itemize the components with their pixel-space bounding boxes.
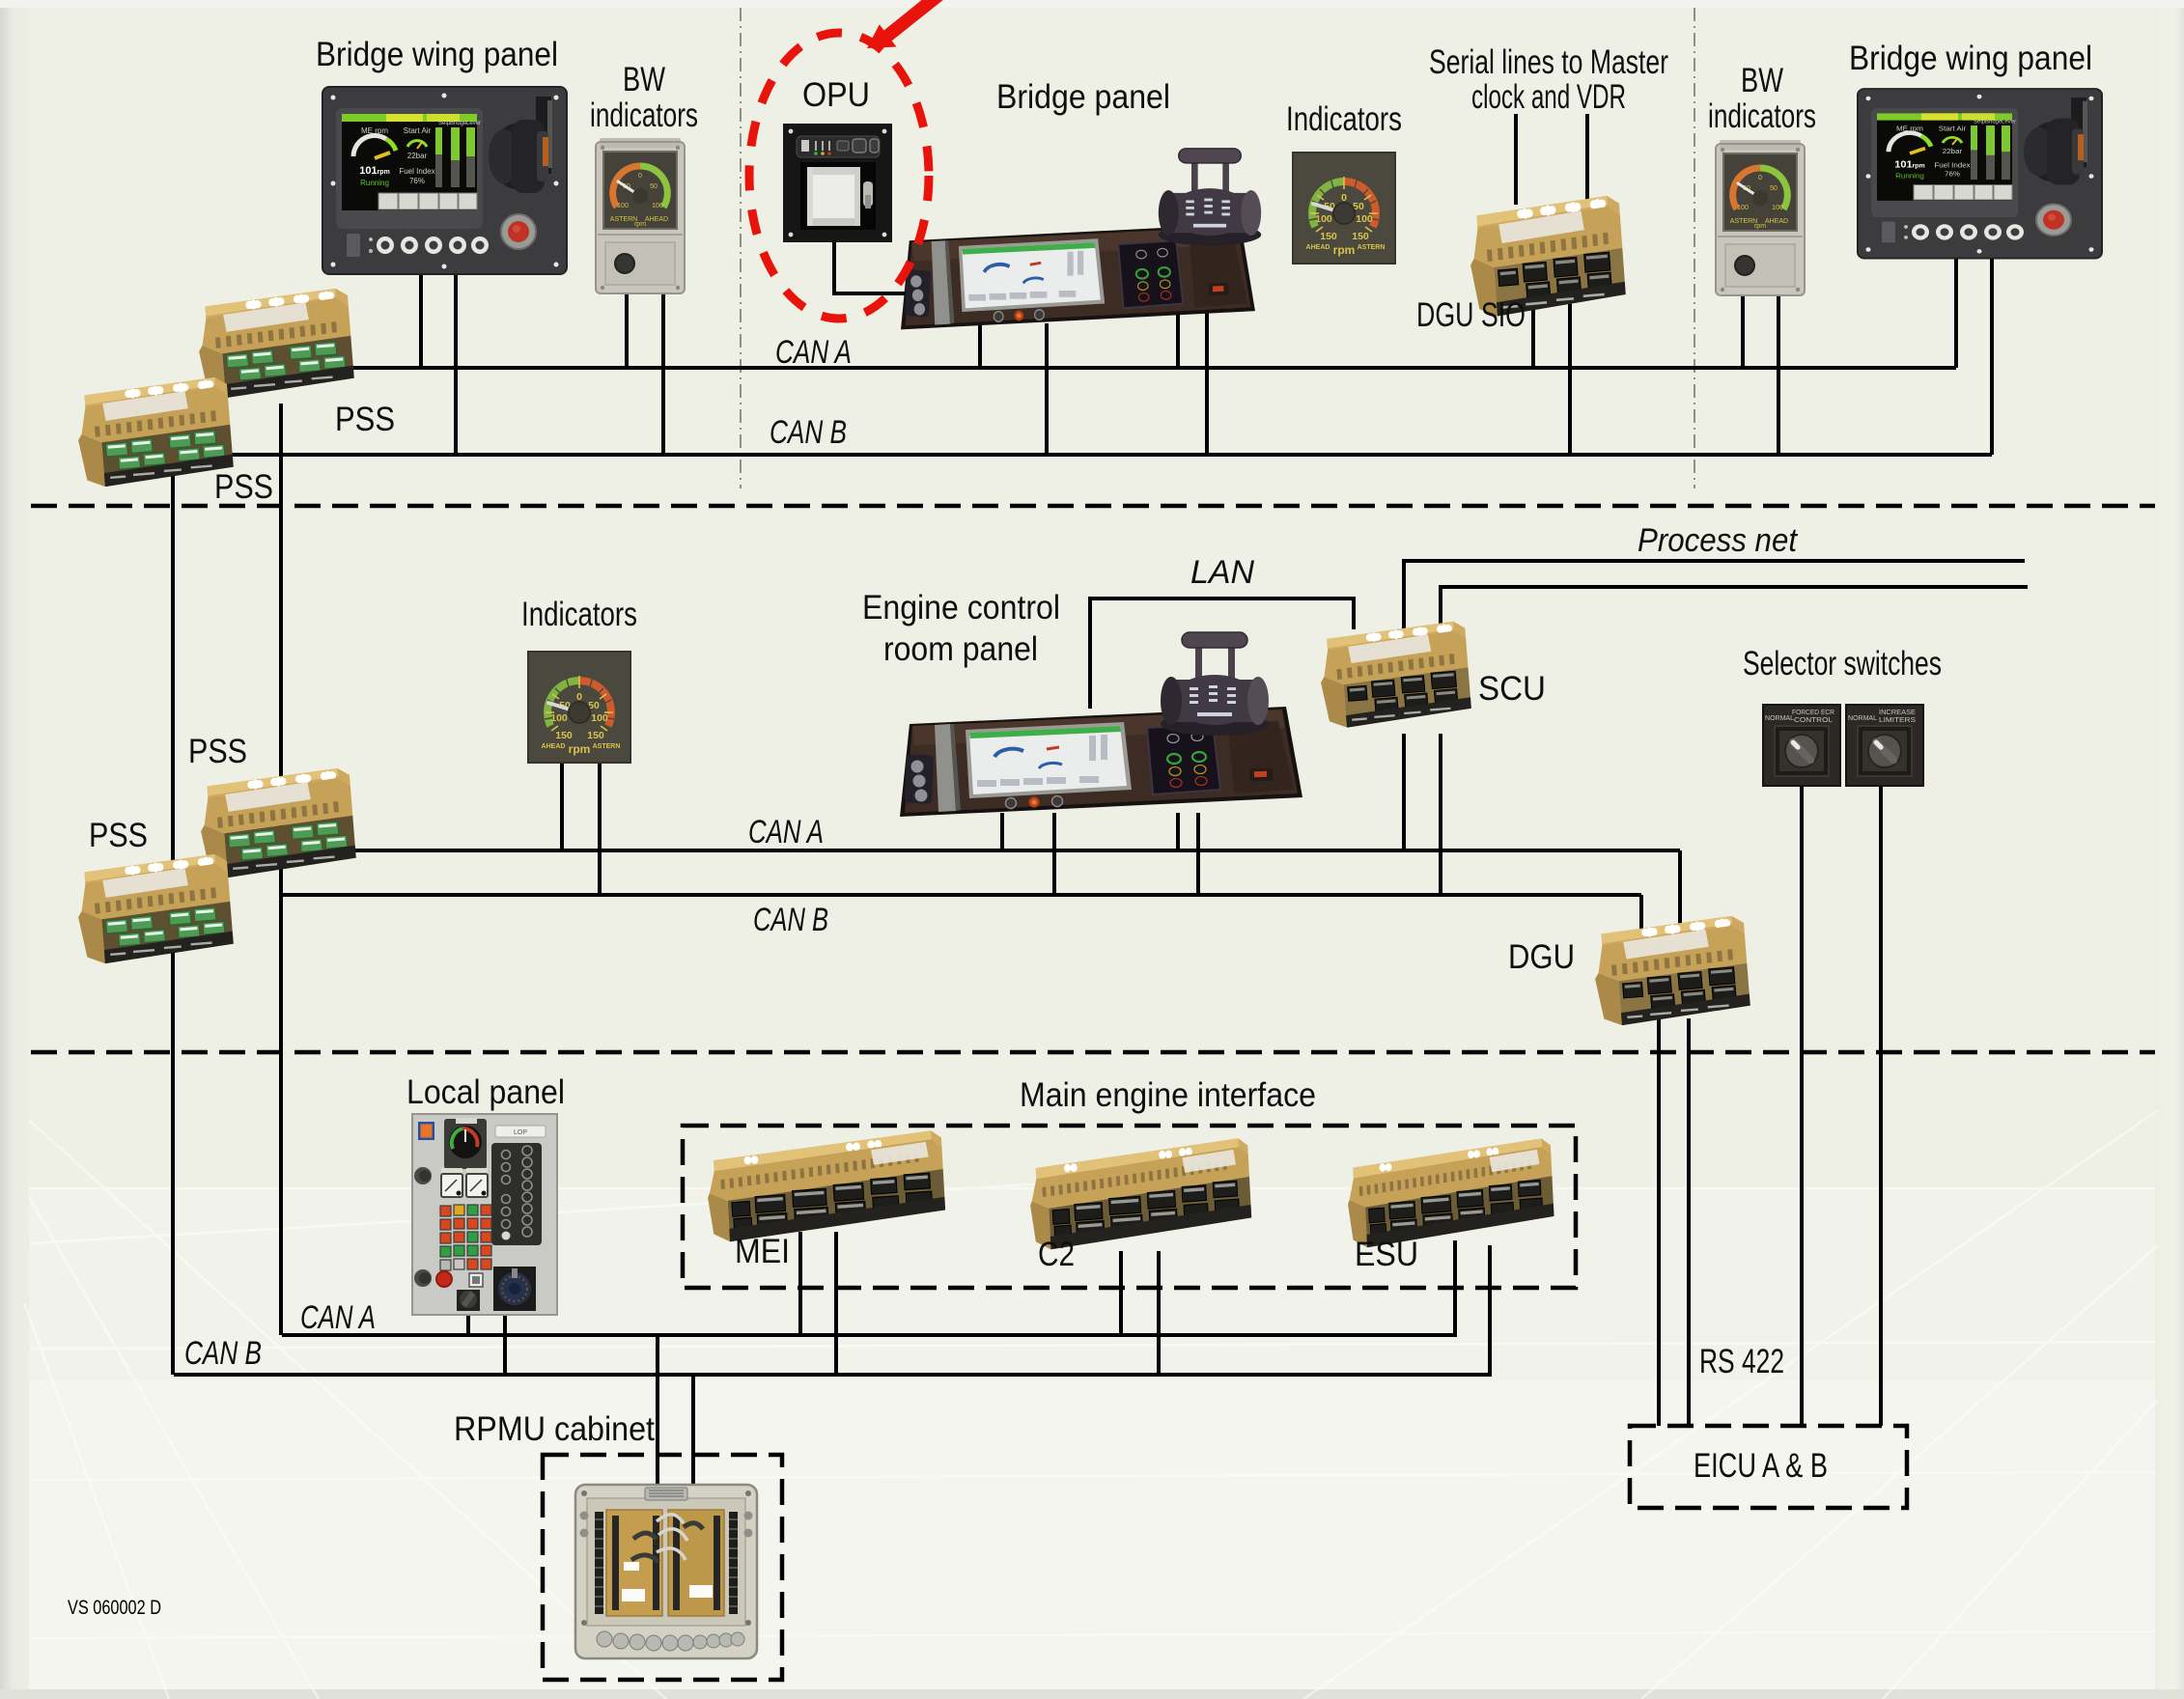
svg-text:PSS: PSS (188, 733, 247, 770)
svg-text:CAN A: CAN A (300, 1299, 376, 1336)
svg-text:room panel: room panel (883, 630, 1038, 668)
svg-text:Indicators: Indicators (1286, 100, 1402, 138)
svg-text:CAN A: CAN A (748, 814, 824, 850)
svg-text:Local panel: Local panel (406, 1073, 565, 1111)
svg-text:clock and VDR: clock and VDR (1471, 78, 1626, 116)
svg-text:CAN B: CAN B (184, 1335, 262, 1372)
svg-text:VS 060002 D: VS 060002 D (68, 1597, 161, 1619)
svg-text:PSS: PSS (335, 401, 395, 438)
svg-text:indicators: indicators (1708, 97, 1816, 135)
svg-text:CONTROL: CONTROL (1794, 715, 1833, 724)
svg-text:BW: BW (623, 61, 665, 98)
svg-text:OPU: OPU (802, 76, 870, 114)
svg-text:EICU A & B: EICU A & B (1694, 1447, 1828, 1485)
svg-text:PSS: PSS (214, 468, 273, 506)
svg-text:Engine control: Engine control (862, 589, 1060, 627)
svg-text:LIMITERS: LIMITERS (1879, 715, 1916, 724)
svg-text:ESU: ESU (1355, 1236, 1418, 1273)
svg-text:CAN A: CAN A (775, 334, 852, 371)
svg-text:BW: BW (1741, 62, 1783, 99)
svg-text:RS 422: RS 422 (1699, 1343, 1784, 1380)
svg-text:MEI: MEI (735, 1233, 790, 1270)
svg-text:PSS: PSS (89, 817, 148, 854)
svg-text:CAN B: CAN B (770, 414, 847, 451)
svg-text:RPMU cabinet: RPMU cabinet (454, 1410, 655, 1448)
svg-text:Bridge wing panel: Bridge wing panel (316, 36, 558, 73)
svg-text:Bridge panel: Bridge panel (996, 78, 1170, 116)
svg-text:DGU: DGU (1508, 938, 1575, 976)
svg-text:DGU SIO: DGU SIO (1416, 296, 1526, 334)
svg-text:Process net: Process net (1638, 522, 1798, 559)
svg-text:Serial lines to Master: Serial lines to Master (1429, 43, 1668, 81)
svg-text:Main engine interface: Main engine interface (1020, 1076, 1316, 1114)
svg-text:SCU: SCU (1478, 670, 1546, 708)
svg-text:C2: C2 (1038, 1236, 1075, 1273)
svg-text:indicators: indicators (590, 97, 698, 134)
svg-text:Indicators: Indicators (521, 596, 637, 633)
svg-text:CAN B: CAN B (753, 902, 828, 938)
svg-text:Selector switches: Selector switches (1743, 645, 1942, 682)
svg-text:LAN: LAN (1190, 554, 1254, 591)
svg-text:Bridge wing panel: Bridge wing panel (1849, 40, 2092, 77)
